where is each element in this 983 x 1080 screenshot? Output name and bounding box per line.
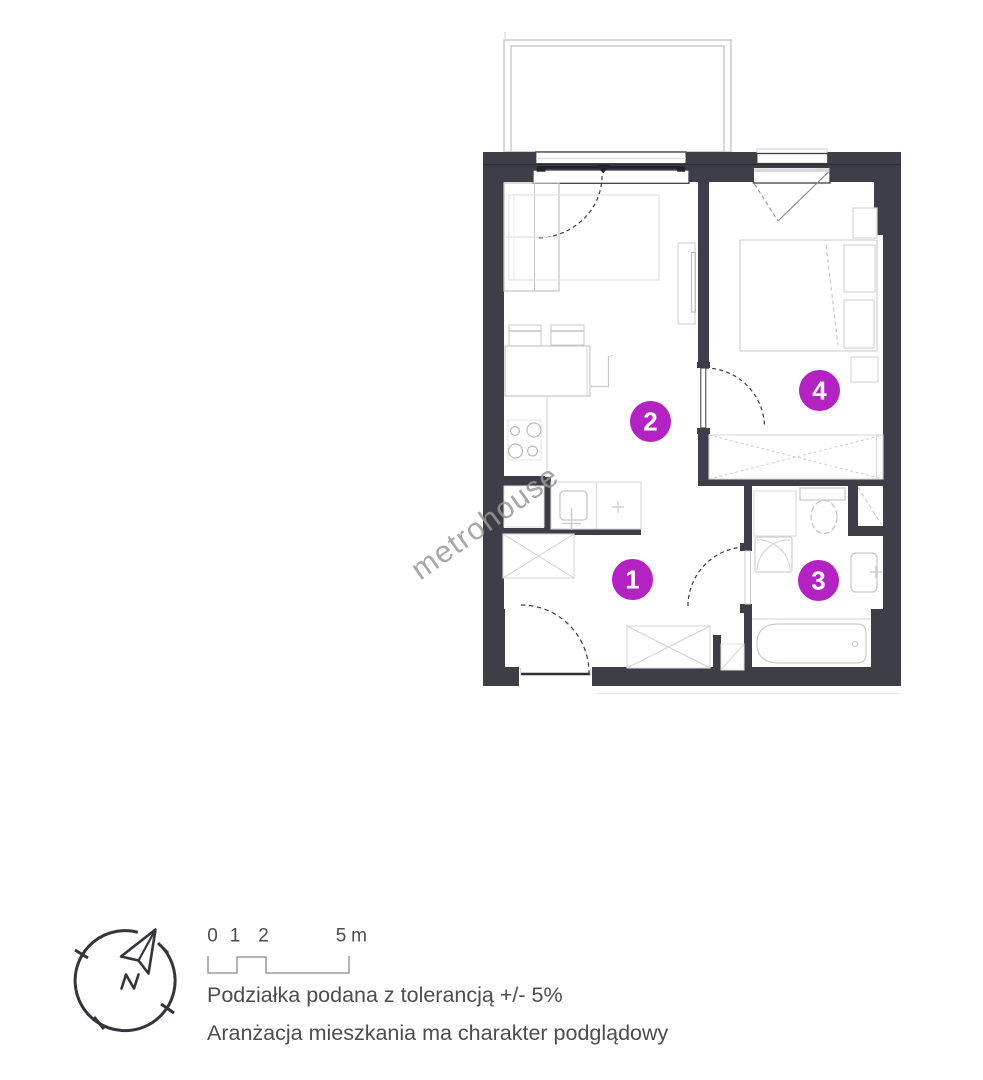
svg-text:Aranżacja mieszkania ma charak: Aranżacja mieszkania ma charakter podglą…	[207, 1021, 669, 1045]
svg-text:0: 0	[207, 926, 218, 947]
svg-text:Podziałka podana z tolerancją: Podziałka podana z tolerancją +/- 5%	[207, 983, 563, 1007]
svg-text:4: 4	[812, 376, 827, 406]
svg-text:2: 2	[258, 926, 269, 947]
svg-text:2: 2	[643, 407, 657, 437]
svg-text:1: 1	[230, 926, 241, 947]
svg-text:3: 3	[811, 566, 825, 596]
svg-text:1: 1	[625, 565, 639, 595]
svg-text:m: m	[351, 926, 367, 947]
svg-text:5: 5	[336, 926, 347, 947]
